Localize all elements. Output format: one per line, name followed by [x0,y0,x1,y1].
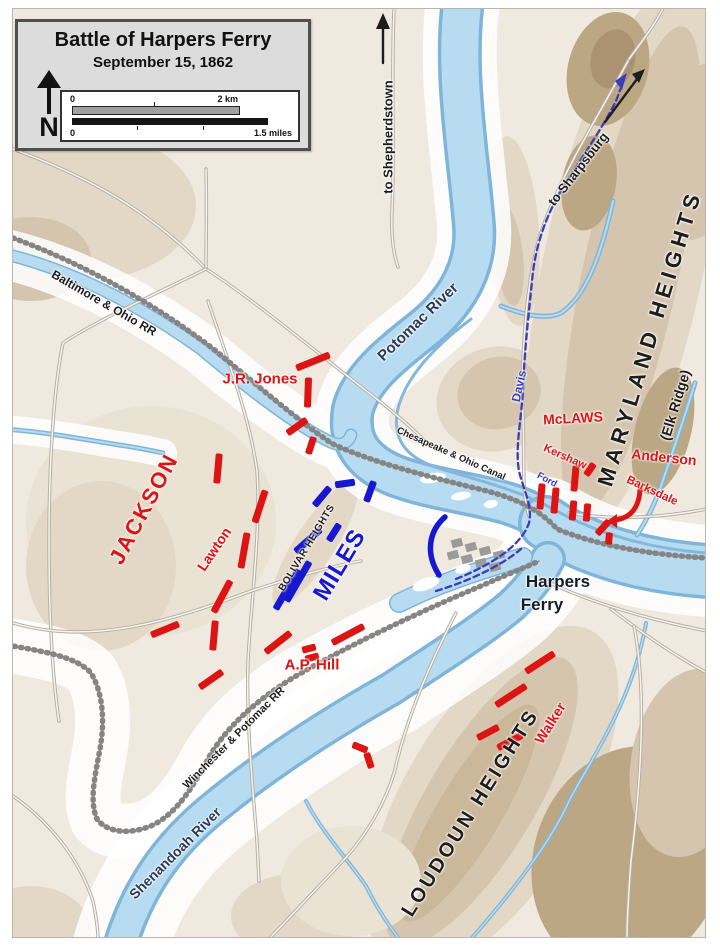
town-building [447,550,460,561]
town-building [465,542,478,553]
town-building [451,538,464,549]
scale-tick [203,126,204,130]
battle-map-page: Battle of Harpers Ferry September 15, 18… [0,0,720,949]
map-canvas: Battle of Harpers Ferry September 15, 18… [12,8,706,938]
jr-jones-label: J.R. Jones [222,371,297,388]
scale-tick [137,126,138,130]
map-title: Battle of Harpers Ferry [18,29,308,52]
scale-zero-km: 0 [70,94,75,104]
ap-hill-label: A.P. Hill [285,657,340,674]
harpers-label: Harpers [526,572,590,592]
scale-miles-label: 1.5 miles [254,128,292,138]
scale-miles-bar [72,118,268,125]
hill [281,826,421,936]
north-arrow-shaft [47,86,51,114]
shepherdstown-arrowhead [376,13,390,29]
scale-km-label: 2 km [217,94,238,104]
scale-tick [154,102,155,106]
scale-bar: 0 2 km 0 1.5 miles [60,90,300,142]
confederate-unit-bar [583,503,592,522]
confederate-unit-bar [304,377,312,407]
scale-km-bar [72,106,240,115]
to-shepherdstown-label: to Shepherdstown [381,80,396,193]
scale-zero-miles: 0 [70,128,75,138]
map-date: September 15, 1862 [18,54,308,71]
map-title-box: Battle of Harpers Ferry September 15, 18… [15,19,311,151]
mclaws-label: McLAWS [543,408,604,427]
ferry-label: Ferry [521,595,564,615]
confederate-unit-bar [605,532,613,545]
